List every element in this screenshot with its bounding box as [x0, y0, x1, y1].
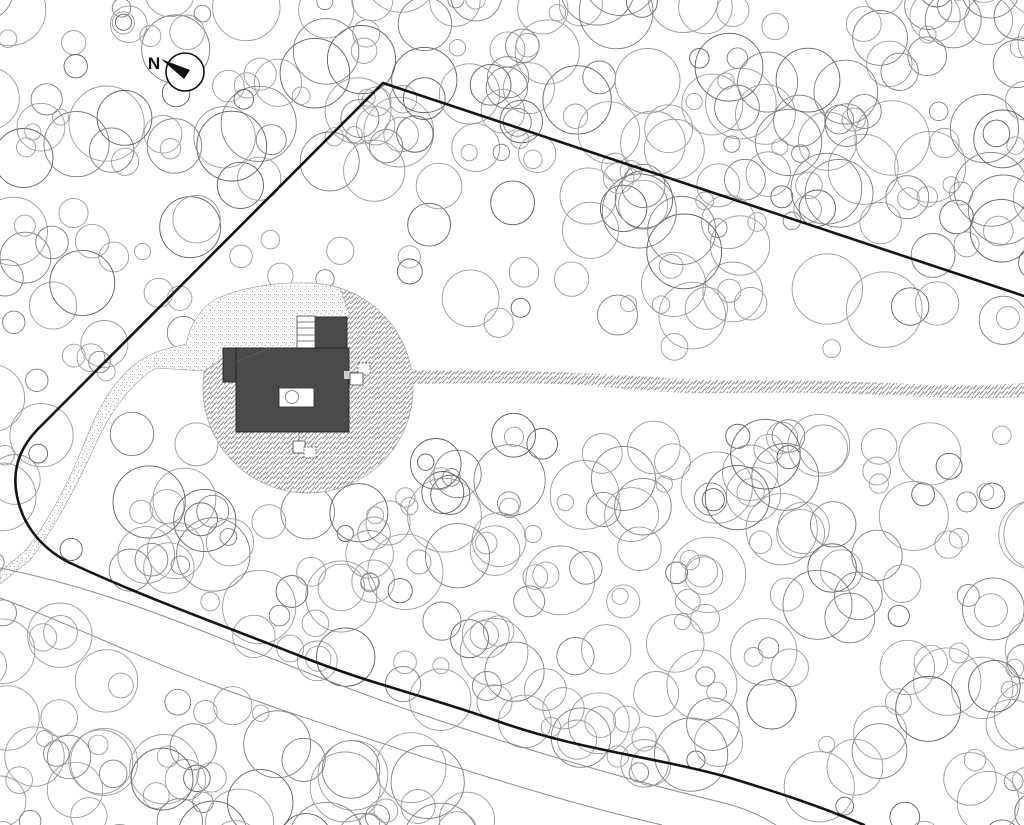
- tree-symbol: [165, 760, 206, 801]
- tree-symbol: [598, 295, 638, 335]
- tree-symbol: [0, 646, 7, 685]
- tree-symbol: [655, 718, 728, 791]
- tree-symbol: [583, 61, 616, 94]
- tree-symbol: [954, 152, 1024, 226]
- tree-symbol: [549, 4, 566, 21]
- tree-symbol: [910, 0, 960, 41]
- tree-symbol: [855, 101, 929, 175]
- tree-symbol: [398, 0, 451, 51]
- tree-symbol: [75, 650, 137, 712]
- tree-symbol: [979, 296, 1024, 344]
- tree-symbol: [449, 40, 465, 56]
- tree-symbol: [890, 802, 920, 825]
- tree-symbol: [217, 162, 263, 208]
- tree-symbol: [71, 798, 107, 825]
- tree-symbol: [112, 148, 139, 175]
- tree-symbol: [346, 127, 362, 143]
- tree-symbol: [29, 282, 76, 329]
- tree-symbol: [746, 152, 791, 197]
- tree-symbol: [230, 245, 253, 268]
- tree-symbol: [397, 116, 433, 152]
- tree-symbol: [353, 20, 380, 47]
- tree-symbol: [62, 30, 86, 54]
- tree-symbol: [168, 286, 192, 310]
- tree-symbol: [935, 531, 962, 558]
- tree-symbol: [160, 139, 180, 159]
- tree-symbol: [659, 255, 683, 279]
- tree-symbol: [256, 125, 286, 155]
- tree-symbol: [1001, 681, 1018, 698]
- tree-symbol: [954, 232, 979, 257]
- tree-symbol: [19, 810, 41, 825]
- tree-symbol: [474, 445, 545, 516]
- tree-symbol: [261, 230, 280, 249]
- tree-symbol: [36, 730, 52, 746]
- tree-symbol: [642, 252, 706, 316]
- tree-symbol: [1013, 166, 1024, 229]
- road-edges: [0, 568, 776, 825]
- tree-symbol: [130, 500, 153, 523]
- tree-symbol: [860, 202, 901, 243]
- tree-symbol: [570, 552, 603, 585]
- tree-symbol: [823, 340, 841, 358]
- tree-symbol: [717, 0, 749, 27]
- tree-symbol: [302, 610, 329, 637]
- tree-symbol: [197, 111, 267, 181]
- tree-symbol: [783, 570, 852, 639]
- tree-symbol: [392, 47, 457, 112]
- tree-symbol: [655, 444, 691, 480]
- tree-symbol: [805, 159, 873, 227]
- tree-symbol: [157, 799, 202, 825]
- tree-symbol: [695, 719, 743, 767]
- tree-symbol: [524, 525, 541, 542]
- tree-symbol: [300, 132, 359, 191]
- tree-symbol: [808, 544, 856, 592]
- tree-symbol: [484, 308, 513, 337]
- tree-symbol: [827, 739, 883, 795]
- tree-symbol: [99, 242, 129, 272]
- tree-symbol: [985, 820, 1020, 825]
- tree-symbol: [206, 789, 274, 825]
- tree-symbol: [407, 550, 431, 574]
- tree-symbol: [554, 262, 588, 296]
- tree-symbol: [970, 199, 1024, 262]
- tree-symbol: [770, 578, 803, 611]
- tree-symbol: [648, 197, 716, 265]
- tree-symbol: [472, 513, 526, 567]
- tree-symbol: [360, 813, 380, 825]
- tree-symbol: [346, 531, 394, 579]
- tree-symbol: [550, 461, 619, 530]
- tree-symbol: [562, 202, 618, 258]
- tree-symbol: [47, 762, 102, 817]
- tree-symbol: [727, 48, 748, 69]
- tree-symbol: [671, 537, 746, 612]
- tree-symbol: [738, 52, 798, 112]
- tree-symbol: [416, 163, 462, 209]
- tree-symbol: [930, 128, 959, 157]
- tree-symbol: [493, 144, 509, 160]
- trees-layer: [0, 0, 1024, 825]
- tree-symbol: [425, 524, 489, 588]
- tree-symbol: [881, 53, 918, 90]
- tree-symbol: [252, 505, 286, 539]
- tree-symbol: [762, 13, 789, 40]
- tree-symbol: [135, 243, 151, 259]
- tree-symbol: [647, 615, 705, 673]
- tree-symbol: [364, 0, 437, 12]
- tree-symbol: [1018, 13, 1024, 69]
- tree-symbol: [736, 85, 796, 145]
- tree-symbol: [993, 40, 1024, 88]
- tree-symbol: [993, 426, 1012, 445]
- tree-symbol: [582, 625, 631, 674]
- tree-symbol: [615, 478, 672, 535]
- tree-symbol: [685, 287, 727, 329]
- tree-symbol: [986, 699, 1024, 750]
- tree-symbol: [885, 689, 911, 715]
- tree-symbol: [706, 68, 777, 139]
- tree-symbol: [771, 186, 793, 208]
- tree-symbol: [470, 526, 520, 576]
- tree-symbol: [1007, 137, 1024, 155]
- tree-symbol: [370, 130, 403, 163]
- tree-symbol: [791, 153, 862, 224]
- tree-symbol: [53, 109, 69, 125]
- tree-symbol: [306, 561, 377, 632]
- tree-symbol: [920, 0, 953, 7]
- tree-symbol: [962, 578, 1024, 640]
- tree-symbol: [177, 518, 250, 591]
- tree-symbol: [368, 534, 443, 609]
- tree-symbol: [227, 770, 293, 825]
- tree-symbol: [618, 527, 662, 571]
- tree-symbol: [317, 628, 375, 686]
- tree-symbol: [746, 494, 817, 565]
- tree-symbol: [322, 741, 380, 799]
- tree-symbol: [509, 258, 539, 288]
- driveway-hatch-band: [411, 370, 1024, 398]
- tree-symbol: [645, 119, 705, 179]
- tree-symbol: [254, 59, 301, 106]
- tree-symbol: [394, 651, 417, 674]
- tree-symbol: [397, 259, 422, 284]
- tree-symbol: [908, 37, 947, 76]
- tree-symbol: [792, 254, 862, 324]
- tree-symbol: [60, 538, 82, 560]
- tree-symbol: [888, 605, 909, 626]
- tree-symbol: [461, 145, 477, 161]
- tree-symbol: [173, 196, 220, 243]
- tree-symbol: [612, 588, 628, 604]
- tree-symbol: [44, 616, 78, 650]
- tree-symbol: [365, 805, 389, 825]
- tree-symbol: [486, 67, 527, 108]
- tree-symbol: [434, 450, 481, 497]
- tree-symbol: [607, 746, 628, 767]
- tree-symbol: [784, 752, 854, 822]
- tree-symbol: [165, 689, 191, 715]
- tree-symbol: [36, 226, 69, 259]
- tree-symbol: [681, 452, 752, 523]
- tree-symbol: [88, 735, 108, 755]
- tree-symbol: [1005, 617, 1024, 683]
- tree-symbol: [201, 592, 220, 611]
- tree-symbol: [796, 172, 823, 199]
- tree-symbol: [59, 198, 88, 227]
- tree-symbol: [206, 519, 253, 566]
- tree-symbol: [0, 67, 19, 130]
- tree-symbol: [847, 272, 923, 348]
- tree-symbol: [1015, 793, 1024, 825]
- tree-symbol: [160, 197, 221, 258]
- tree-symbol: [527, 429, 558, 460]
- tree-symbol: [726, 424, 750, 448]
- north-label: N: [148, 54, 160, 73]
- tree-symbol: [109, 673, 134, 698]
- tree-symbol: [293, 19, 359, 85]
- tree-symbol: [430, 0, 480, 26]
- tree-symbol: [62, 344, 85, 367]
- tree-symbol: [147, 119, 201, 173]
- tree-symbol: [244, 711, 311, 778]
- tree-symbol: [628, 421, 681, 474]
- tree-symbol: [999, 501, 1024, 569]
- tree-symbol: [666, 562, 688, 584]
- tree-symbol: [886, 176, 929, 219]
- tree-symbol: [6, 767, 33, 794]
- tree-symbol: [852, 530, 902, 580]
- tree-symbol: [511, 298, 530, 317]
- tree-symbol: [352, 0, 393, 21]
- tree-symbol: [213, 0, 280, 41]
- tree-symbol: [439, 792, 494, 825]
- site-plan-canvas: N: [0, 0, 1024, 825]
- tree-symbol: [560, 0, 634, 25]
- tree-symbol: [983, 120, 1010, 147]
- tree-symbol: [511, 130, 529, 148]
- tree-symbol: [280, 38, 350, 108]
- tree-symbol: [423, 602, 461, 640]
- site-plan: N: [0, 0, 1024, 825]
- tree-symbol: [526, 546, 595, 615]
- tree-symbol: [879, 481, 948, 550]
- tree-symbol: [734, 287, 767, 320]
- tree-symbol: [892, 288, 929, 325]
- tree-symbol: [758, 638, 778, 658]
- tree-symbol: [466, 0, 486, 9]
- tree-symbol: [327, 237, 354, 264]
- tree-symbol: [269, 605, 290, 626]
- tree-symbol: [914, 645, 947, 678]
- tree-symbol: [583, 0, 657, 16]
- tree-symbol: [282, 738, 325, 781]
- tree-symbol: [516, 33, 540, 57]
- tree-symbol: [737, 479, 764, 506]
- tree-symbol: [504, 427, 523, 446]
- tree-symbol: [880, 640, 934, 694]
- tree-symbol: [31, 84, 62, 115]
- tree-symbol: [686, 93, 702, 109]
- tree-symbol: [774, 95, 826, 147]
- tree-symbol: [1019, 246, 1024, 279]
- tree-symbol: [602, 174, 676, 248]
- tree-symbol: [582, 434, 622, 474]
- tree-symbol: [524, 150, 543, 169]
- tree-symbol: [560, 168, 616, 224]
- tree-symbol: [398, 246, 420, 268]
- tree-symbol: [292, 87, 310, 105]
- tree-symbol: [110, 412, 153, 455]
- tree-symbol: [585, 707, 616, 738]
- tree-symbol: [89, 351, 111, 373]
- tree-symbol: [696, 667, 715, 686]
- tree-symbol: [800, 425, 848, 473]
- tree-symbol: [996, 306, 1019, 329]
- tree-symbol: [949, 529, 969, 549]
- tree-symbol: [557, 637, 594, 674]
- tree-symbol: [854, 706, 907, 759]
- tree-symbol: [470, 64, 511, 105]
- tree-symbol: [344, 140, 405, 201]
- tree-symbol: [957, 492, 977, 512]
- tree-symbol: [929, 102, 948, 121]
- tree-symbol: [145, 0, 195, 17]
- tree-symbol: [1004, 499, 1024, 570]
- tree-symbol: [634, 672, 679, 717]
- tree-symbol: [0, 0, 46, 46]
- tree-symbol: [170, 15, 205, 50]
- tree-symbol: [17, 138, 36, 157]
- tree-symbol: [724, 136, 740, 152]
- tree-symbol: [748, 213, 767, 232]
- tree-symbol: [462, 611, 509, 658]
- tree-symbol: [476, 532, 498, 554]
- tree-symbol: [26, 369, 48, 391]
- tree-symbol: [64, 54, 87, 77]
- tree-symbol: [3, 311, 25, 333]
- tree-symbol: [374, 799, 398, 823]
- tree-symbol: [977, 484, 994, 501]
- tree-symbol: [367, 507, 384, 524]
- tree-symbol: [0, 686, 39, 750]
- tree-symbol: [607, 585, 640, 618]
- tree-symbol: [0, 364, 25, 432]
- tree-symbol: [695, 33, 763, 101]
- tree-symbol: [563, 104, 587, 128]
- tree-symbol: [819, 736, 835, 752]
- tree-symbol: [975, 594, 1008, 627]
- tree-symbol: [776, 48, 840, 112]
- tree-symbol: [194, 107, 255, 168]
- tree-symbol: [99, 760, 127, 788]
- tree-symbol: [418, 454, 434, 470]
- tree-symbol: [910, 821, 938, 825]
- tree-symbol: [835, 572, 883, 620]
- tree-symbol: [491, 181, 535, 225]
- tree-symbol: [253, 705, 269, 721]
- tree-symbol: [898, 188, 920, 210]
- tree-symbol: [514, 586, 545, 617]
- tree-symbol: [648, 0, 718, 33]
- tree-symbol: [686, 555, 718, 587]
- tree-symbol: [439, 64, 499, 124]
- tree-symbol: [317, 0, 333, 10]
- tree-symbol: [500, 100, 543, 143]
- tree-symbol: [679, 0, 733, 34]
- tree-symbol: [631, 746, 670, 785]
- tree-symbol: [451, 0, 502, 21]
- tree-symbol: [543, 66, 611, 134]
- tree-symbol: [358, 517, 390, 549]
- tree-symbol: [194, 5, 211, 22]
- tree-symbol: [448, 0, 464, 8]
- tree-symbol: [150, 490, 184, 524]
- tree-symbol: [234, 73, 259, 98]
- tree-symbol: [557, 494, 573, 510]
- tree-symbol: [0, 232, 51, 283]
- tree-symbol: [0, 0, 13, 20]
- tree-symbol: [883, 565, 921, 603]
- tree-symbol: [863, 457, 891, 485]
- north-arrow: N: [148, 53, 204, 91]
- tree-symbol: [433, 658, 449, 674]
- tree-symbol: [656, 476, 672, 492]
- tree-symbol: [1005, 0, 1024, 16]
- tree-symbol: [744, 648, 763, 667]
- tree-symbol: [408, 203, 451, 246]
- tree-symbol: [25, 124, 41, 140]
- tree-symbol: [75, 224, 109, 258]
- tree-symbol: [731, 419, 801, 489]
- tree-symbol: [442, 270, 499, 327]
- tree-symbol: [297, 557, 326, 586]
- tree-symbol: [244, 58, 276, 90]
- tree-symbol: [318, 564, 364, 610]
- tree-symbol: [647, 214, 722, 289]
- tree-symbol: [691, 604, 720, 633]
- tree-symbol: [143, 783, 169, 809]
- tree-symbol: [451, 620, 489, 658]
- tree-symbol: [814, 60, 878, 124]
- tree-symbol: [519, 135, 556, 172]
- tree-symbol: [747, 680, 796, 729]
- tree-symbol: [674, 614, 690, 630]
- tree-symbol: [861, 429, 897, 465]
- tree-symbol: [767, 422, 798, 453]
- tree-symbol: [391, 745, 464, 818]
- tree-symbol: [615, 49, 680, 114]
- tree-symbol: [661, 333, 688, 360]
- tree-symbol: [703, 262, 763, 322]
- tree-symbol: [869, 474, 888, 493]
- tree-symbol: [170, 724, 216, 770]
- tree-symbol: [965, 0, 1013, 45]
- tree-symbol: [97, 362, 115, 380]
- tree-symbol: [385, 666, 420, 701]
- tree-symbol: [197, 495, 229, 527]
- tree-symbol: [109, 549, 151, 591]
- tree-symbol: [487, 57, 528, 98]
- tree-symbol: [836, 797, 854, 815]
- tree-symbol: [944, 753, 997, 806]
- tree-symbol: [731, 619, 797, 685]
